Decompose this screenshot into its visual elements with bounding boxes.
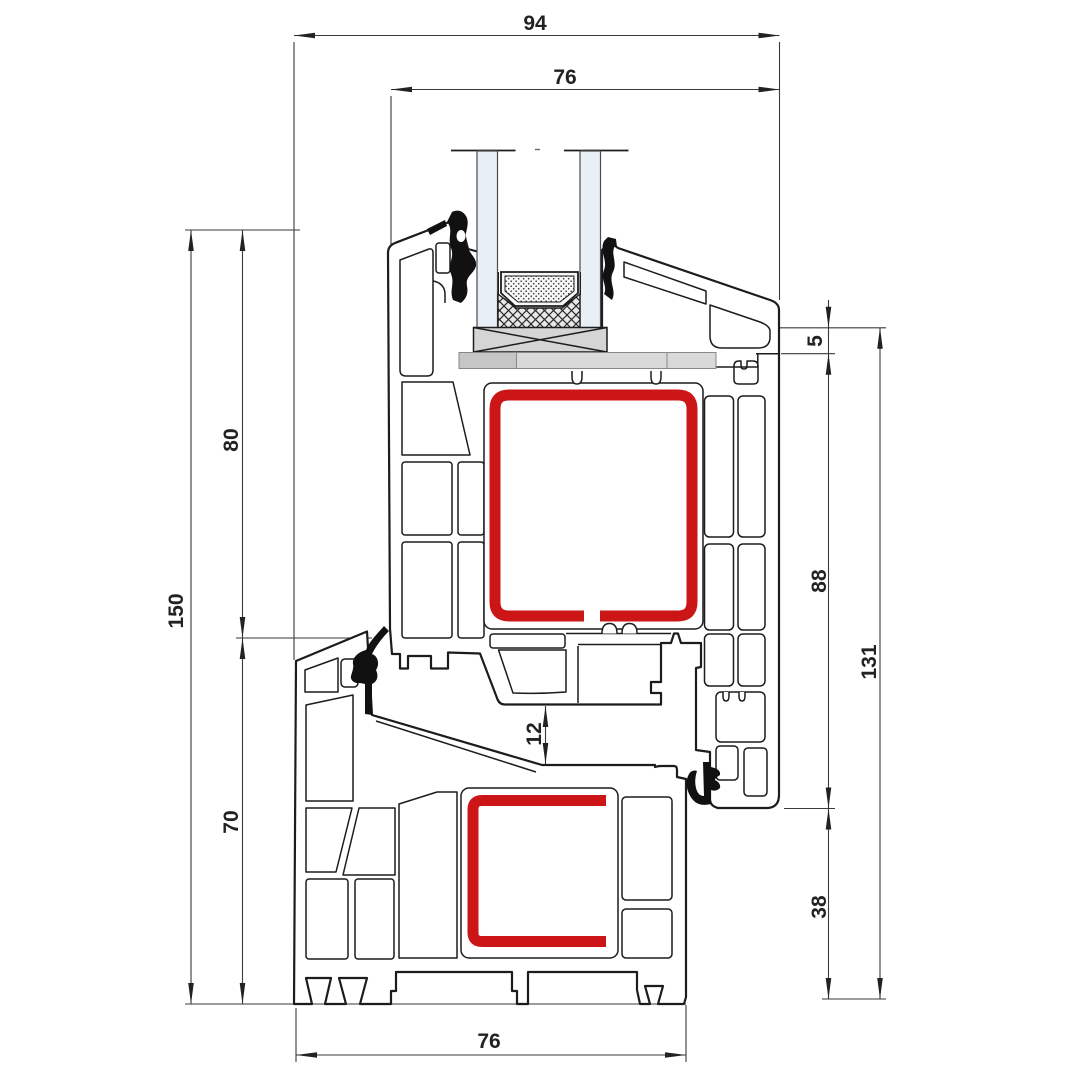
svg-text:70: 70	[220, 810, 243, 833]
svg-text:12: 12	[523, 722, 546, 745]
svg-text:80: 80	[220, 428, 243, 451]
svg-text:38: 38	[808, 895, 831, 919]
svg-text:131: 131	[858, 644, 881, 679]
svg-text:88: 88	[808, 569, 831, 593]
svg-text:76: 76	[553, 66, 576, 89]
svg-text:150: 150	[165, 593, 188, 628]
svg-text:94: 94	[523, 12, 547, 35]
svg-text:76: 76	[477, 1030, 500, 1053]
svg-text:5: 5	[804, 335, 827, 347]
